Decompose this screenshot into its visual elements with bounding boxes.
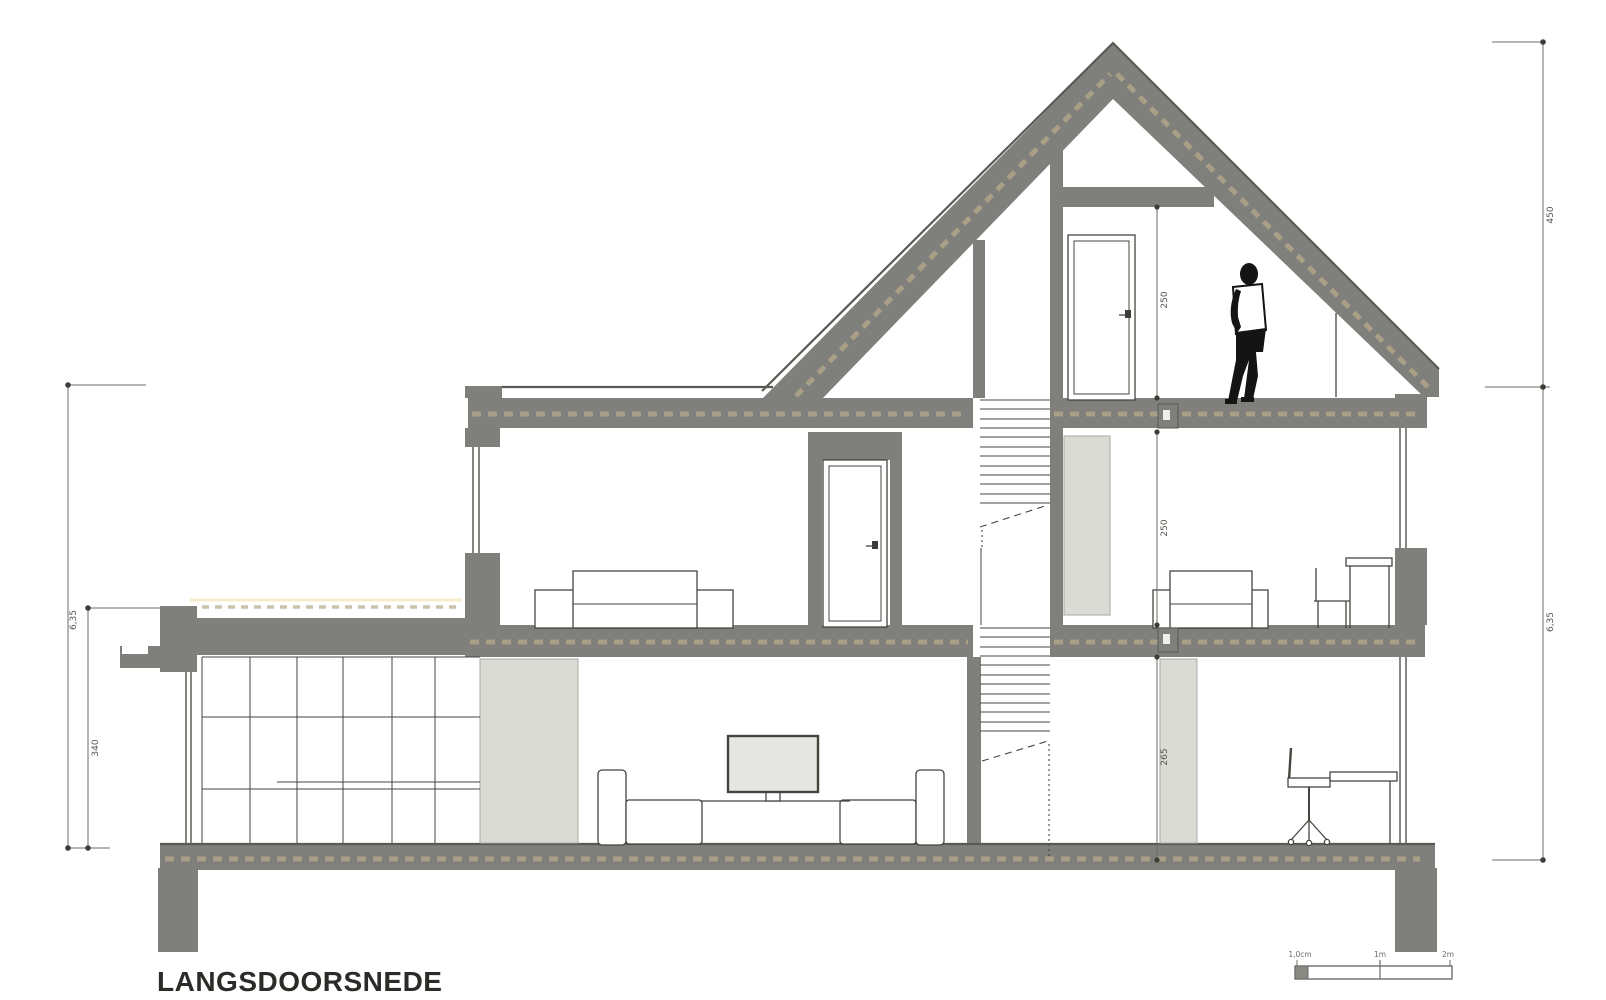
dim-left-extension: 340	[91, 739, 101, 756]
tv-screen	[728, 736, 818, 792]
structure	[120, 43, 1439, 952]
figure-foot	[1241, 397, 1254, 402]
scale-label-mid: 1m	[1374, 950, 1386, 959]
scale-bar: 1,0cm 1m 2m	[1288, 950, 1454, 979]
furniture	[535, 558, 1397, 846]
scale-label-end: 2m	[1442, 950, 1454, 959]
upper-closet-block	[1064, 436, 1110, 615]
left-wall-lower	[465, 553, 500, 625]
ground-storage-block	[480, 659, 578, 843]
attic-door	[1068, 235, 1135, 400]
right-wall-mid	[1395, 548, 1427, 625]
canopy-notch	[122, 646, 148, 654]
partition-wall-a	[808, 432, 822, 625]
dim-first-floor-height: 250	[1160, 519, 1170, 536]
figure-head	[1240, 263, 1258, 285]
collar-beam	[1062, 187, 1214, 207]
right-wall-upper	[1395, 394, 1427, 428]
sofa-right	[840, 770, 944, 845]
dim-right-total: 6,35	[1546, 612, 1556, 632]
dim-ground-floor-height: 265	[1160, 748, 1170, 765]
tv-console	[700, 736, 850, 801]
flat-roof-cap	[465, 386, 502, 398]
section-drawing: 6,35 340 450 6,35 250 250 265 1,0cm 1m	[0, 0, 1606, 1000]
tv-stand	[766, 792, 780, 801]
office-desk-chair	[1288, 748, 1397, 846]
attic-knee-post	[973, 240, 985, 398]
door-handle	[872, 541, 878, 549]
stairs-lower-flight	[980, 628, 1050, 858]
human-figure	[1225, 263, 1266, 404]
foundation-pier-right	[1395, 868, 1437, 952]
drawing-sheet: 6,35 340 450 6,35 250 250 265 1,0cm 1m	[0, 0, 1606, 1000]
first-floor-door	[823, 460, 887, 627]
extension-flat-roof	[160, 618, 490, 655]
sofa-left	[598, 770, 702, 845]
kitchen-grid	[202, 657, 480, 843]
partition-wall-b	[890, 432, 902, 625]
level-marker-glyph	[1163, 634, 1170, 644]
dim-left-total: 6,35	[69, 610, 79, 630]
bed-left	[535, 571, 733, 628]
roof-right-slope	[1113, 43, 1439, 397]
level-marker-glyph	[1163, 410, 1170, 420]
staircase	[980, 400, 1050, 858]
door-lintel	[822, 432, 890, 460]
dim-right-roof: 450	[1546, 206, 1556, 223]
dim-attic-height: 250	[1160, 291, 1170, 308]
desk-chair-upper	[1314, 558, 1392, 628]
figure-foot	[1225, 399, 1237, 404]
scale-label-start: 1,0cm	[1288, 950, 1311, 959]
figure-legs	[1228, 328, 1266, 401]
ground-interior-wall	[967, 657, 981, 843]
drawing-title: LANGSDOORSNEDE	[157, 966, 442, 998]
center-post	[1050, 150, 1063, 625]
extension-wall-head	[160, 655, 197, 672]
foundation-pier-left	[158, 868, 198, 952]
bed-right	[1153, 571, 1268, 628]
stairs-upper-flight	[980, 400, 1050, 625]
left-wall-upper	[465, 428, 500, 447]
door-handle	[1125, 310, 1131, 318]
